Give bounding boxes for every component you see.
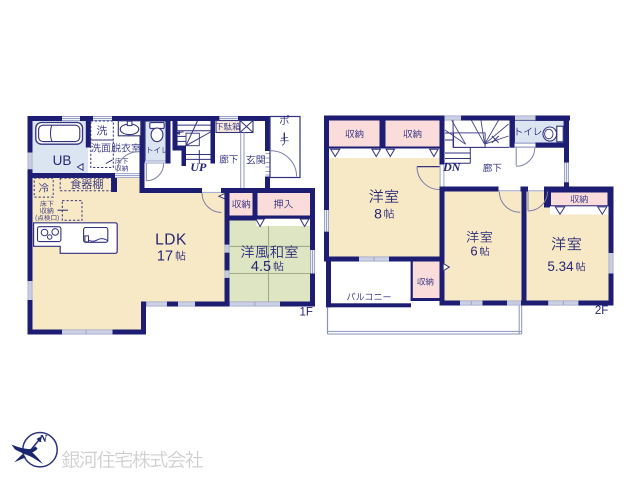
- svg-text:5.34: 5.34: [547, 259, 574, 274]
- svg-text:UB: UB: [53, 153, 72, 168]
- svg-text:2F: 2F: [595, 305, 608, 317]
- svg-text:LDK: LDK: [155, 231, 187, 248]
- svg-text:UP: UP: [190, 160, 207, 174]
- svg-text:1F: 1F: [299, 307, 312, 319]
- svg-text:6: 6: [470, 244, 477, 259]
- svg-text:4.5: 4.5: [251, 259, 271, 275]
- svg-text:17: 17: [157, 249, 173, 265]
- svg-text:8: 8: [374, 205, 382, 221]
- svg-text:DN: DN: [442, 160, 462, 174]
- svg-text:N: N: [38, 433, 48, 445]
